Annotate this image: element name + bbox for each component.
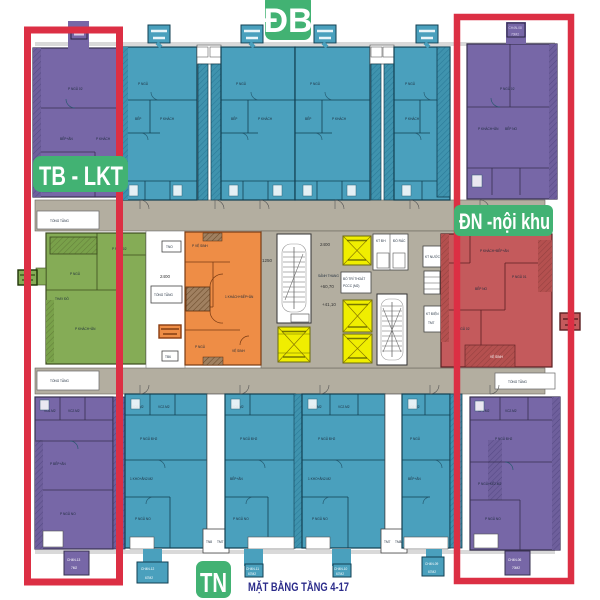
svg-text:MẶT BẰNG TẦNG 4-17: MẶT BẰNG TẦNG 4-17 (248, 579, 349, 594)
svg-text:P NGỦ+KẾ2.M2: P NGỦ+KẾ2.M2 (478, 481, 501, 486)
svg-text:P NGỦ ĐH2: P NGỦ ĐH2 (140, 436, 158, 441)
svg-text:BẾP+ĂN: BẾP+ĂN (408, 476, 421, 481)
svg-text:P NGỦ: P NGỦ (405, 81, 416, 86)
svg-text:2400: 2400 (160, 274, 171, 279)
svg-text:VC2.M2: VC2.M2 (158, 405, 170, 409)
svg-text:TM7: TM7 (428, 321, 435, 325)
svg-text:P KHÁCH: P KHÁCH (332, 117, 347, 121)
svg-text:1250: 1250 (262, 258, 273, 263)
svg-text:KT NƯỚC: KT NƯỚC (425, 254, 441, 259)
svg-text:KT ĐIỆN: KT ĐIỆN (426, 311, 439, 316)
svg-text:BỐ TRÍ THOÁT: BỐ TRÍ THOÁT (343, 276, 365, 281)
svg-text:BẾP: BẾP (231, 116, 237, 121)
svg-text:VC2.M2: VC2.M2 (505, 409, 517, 413)
svg-text:BẾP: BẾP (135, 116, 141, 121)
svg-text:CH4N-13: CH4N-13 (67, 558, 81, 562)
svg-text:P KHÁCH+BẾP+ĂN: P KHÁCH+BẾP+ĂN (480, 248, 509, 253)
svg-text:P NGỦ 01: P NGỦ 01 (512, 274, 527, 279)
svg-text:TỔNG TẦNG: TỔNG TẦNG (50, 218, 69, 223)
svg-text:P NGỦ: P NGỦ (410, 436, 421, 441)
svg-text:CH4N-08: CH4N-08 (509, 26, 523, 30)
svg-text:P NGỦ 02: P NGỦ 02 (68, 86, 83, 91)
svg-text:P KHÁCH: P KHÁCH (405, 117, 420, 121)
svg-text:P NGỦ: P NGỦ (138, 81, 149, 86)
svg-text:P NGỦ ĐH2: P NGỦ ĐH2 (318, 436, 336, 441)
svg-text:1 KHÁCH+BẾP+ĂN: 1 KHÁCH+BẾP+ĂN (225, 294, 254, 299)
svg-text:TN8: TN8 (206, 540, 212, 544)
svg-text:BẾP+ĂN: BẾP+ĂN (60, 136, 73, 141)
svg-text:PCCC (M2): PCCC (M2) (343, 284, 359, 288)
svg-text:SẢNH THANG: SẢNH THANG (318, 273, 339, 278)
svg-text:P NGỦ ĐH2: P NGỦ ĐH2 (240, 436, 258, 441)
svg-text:TM7: TM7 (217, 540, 224, 544)
svg-text:70M2: 70M2 (512, 566, 520, 570)
svg-text:67M2: 67M2 (248, 572, 256, 576)
svg-text:TNO: TNO (166, 245, 173, 249)
svg-text:BẾP+ĂN: BẾP+ĂN (230, 476, 243, 481)
svg-text:P VỆ SINH: P VỆ SINH (192, 243, 208, 248)
svg-text:P NGỦ NO: P NGỦ NO (135, 516, 151, 521)
svg-text:ĐB: ĐB (263, 2, 312, 40)
svg-text:CH4N-09: CH4N-09 (425, 562, 439, 566)
svg-text:VC2.M2: VC2.M2 (68, 409, 80, 413)
svg-text:CH4N-06: CH4N-06 (508, 558, 522, 562)
svg-text:VC2.M2: VC2.M2 (338, 405, 350, 409)
svg-text:P NGỦ 02: P NGỦ 02 (500, 86, 515, 91)
svg-text:TB6: TB6 (165, 355, 171, 359)
svg-text:TỔNG TẦNG: TỔNG TẦNG (508, 379, 527, 384)
svg-text:BẾP NO: BẾP NO (475, 286, 488, 291)
svg-text:P KHÁCH: P KHÁCH (160, 117, 175, 121)
svg-text:67M2: 67M2 (428, 570, 436, 574)
svg-text:VỆ SINH: VỆ SINH (232, 348, 245, 353)
svg-text:P NGỦ: P NGỦ (310, 81, 321, 86)
svg-text:67M2: 67M2 (145, 576, 153, 580)
svg-text:BẾP: BẾP (305, 116, 311, 121)
svg-text:TN: TN (200, 567, 227, 598)
svg-text:P NGỦ NO: P NGỦ NO (485, 516, 501, 521)
svg-text:TỔNG TẦNG: TỔNG TẦNG (154, 292, 173, 297)
svg-text:ĐỔ RÁC: ĐỔ RÁC (393, 238, 406, 243)
svg-text:+41,10: +41,10 (322, 302, 336, 307)
svg-text:P NGỦ NO: P NGỦ NO (312, 516, 328, 521)
svg-text:P BẾP+ĂN: P BẾP+ĂN (50, 461, 66, 466)
svg-text:P NGỦ: P NGỦ (195, 344, 206, 349)
svg-text:P NGỦ: P NGỦ (70, 271, 81, 276)
svg-text:1 KHO+ĂN2.M2: 1 KHO+ĂN2.M2 (308, 477, 331, 481)
svg-text:7M2: 7M2 (71, 566, 77, 570)
svg-text:+60,70: +60,70 (320, 284, 334, 289)
svg-text:THAY ĐỒ: THAY ĐỒ (55, 296, 69, 301)
svg-text:P KHÁCH: P KHÁCH (258, 117, 273, 121)
svg-text:70M2: 70M2 (511, 33, 519, 37)
svg-text:VỆ SINH: VỆ SINH (490, 354, 503, 359)
svg-text:TM8: TM8 (395, 540, 402, 544)
svg-text:P NGỦ ĐH2: P NGỦ ĐH2 (495, 436, 513, 441)
svg-text:TỔNG TẦNG: TỔNG TẦNG (50, 378, 69, 383)
svg-text:2400: 2400 (320, 242, 331, 247)
svg-text:KT ĐH: KT ĐH (376, 239, 386, 243)
svg-text:CH4N-12: CH4N-12 (141, 567, 155, 571)
svg-text:1 KHO+ĂN2.M2: 1 KHO+ĂN2.M2 (130, 477, 153, 481)
svg-text:CH4N-11: CH4N-11 (246, 567, 259, 571)
svg-text:P NGỦ: P NGỦ (236, 81, 247, 86)
svg-text:BẾP NO: BẾP NO (505, 126, 518, 131)
svg-text:ĐN -nội khu: ĐN -nội khu (459, 209, 550, 234)
svg-text:P KHÁCH+ĂN: P KHÁCH+ĂN (478, 127, 499, 131)
svg-text:P KHÁCH: P KHÁCH (96, 137, 111, 141)
svg-text:CH4N-10: CH4N-10 (334, 567, 348, 571)
svg-text:P KHÁCH+ĂN: P KHÁCH+ĂN (75, 327, 96, 331)
svg-text:TM7: TM7 (384, 540, 391, 544)
svg-text:P NGỦ NO: P NGỦ NO (60, 511, 76, 516)
svg-text:P NGỦ NO: P NGỦ NO (233, 516, 249, 521)
svg-text:67M2: 67M2 (336, 572, 344, 576)
svg-text:TB - LKT: TB - LKT (39, 161, 123, 191)
